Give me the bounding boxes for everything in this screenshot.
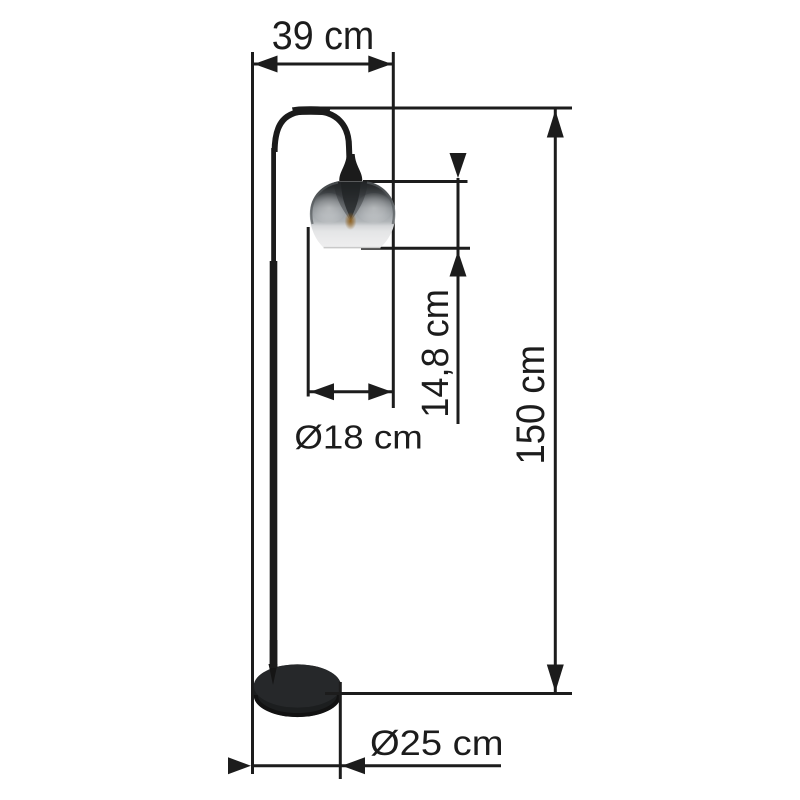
- svg-text:Ø18 cm: Ø18 cm: [294, 420, 422, 457]
- svg-text:39 cm: 39 cm: [272, 14, 375, 58]
- svg-text:150 cm: 150 cm: [509, 345, 553, 465]
- svg-text:Ø25 cm: Ø25 cm: [370, 724, 504, 763]
- svg-text:14,8 cm: 14,8 cm: [415, 289, 457, 418]
